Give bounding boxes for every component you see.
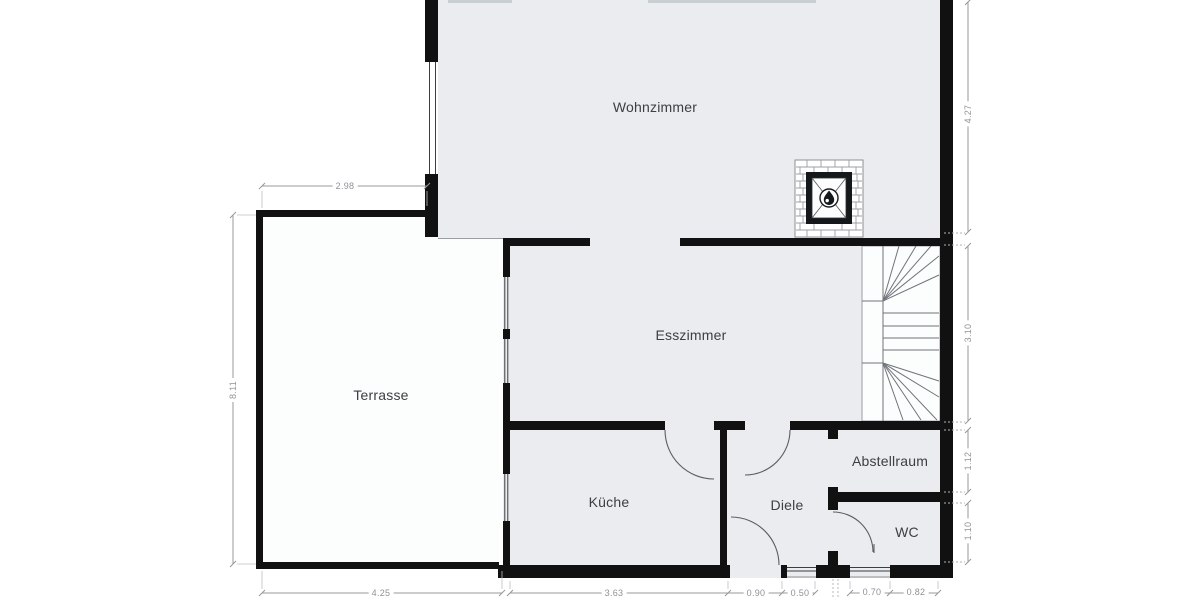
wall-east	[940, 0, 953, 578]
room-label-abstellraum: Abstellraum	[852, 453, 928, 469]
wall-stub-middle	[828, 487, 838, 510]
room-label-wohnzimmer: Wohnzimmer	[613, 99, 697, 115]
room-label-wc: WC	[895, 524, 919, 540]
floor-plan: Wohnzimmer Esszimmer Terrasse Küche Diel…	[0, 0, 1200, 600]
wall-stub-wc	[828, 551, 838, 565]
top-wall-strip	[448, 0, 512, 3]
room-label-esszimmer: Esszimmer	[655, 327, 726, 343]
terrace-wall-top	[256, 210, 431, 217]
dim-bottom-wc-window: 0.70	[860, 587, 885, 597]
wall-south-middle	[816, 565, 850, 578]
wall-south-pier	[781, 565, 787, 578]
fireplace	[795, 160, 863, 237]
dim-terrasse-depth: 8.11	[228, 378, 238, 402]
wall-abstellraum-wc	[838, 492, 940, 502]
dim-terrasse-width: 2.98	[333, 181, 358, 191]
wall-wohnzimmer-esszimmer-right	[680, 238, 940, 246]
wall-south-east	[890, 565, 953, 578]
dim-bottom-terrasse: 4.25	[369, 588, 394, 598]
stairs-area	[862, 246, 940, 421]
dim-right-stairs: 3.10	[963, 321, 973, 346]
stairs	[862, 246, 940, 421]
room-label-diele: Diele	[771, 497, 804, 513]
flame-icon-highlight	[826, 199, 829, 202]
wall-west-esszimmer	[503, 238, 510, 277]
terrace-wall-bottom	[256, 562, 499, 569]
dim-right-abstellraum: 1.12	[963, 449, 973, 474]
top-wall-strip	[648, 0, 816, 3]
terrace-wall-left	[256, 210, 263, 569]
wall-south-kueche	[498, 565, 730, 578]
wall-stub-abstellraum	[828, 430, 838, 439]
dim-bottom-wall: 0.82	[904, 587, 929, 597]
window-cap	[503, 470, 510, 474]
dim-right-wc: 1.10	[963, 519, 973, 544]
wall-esszimmer-abstellraum	[790, 421, 940, 430]
wall-wohnzimmer-esszimmer-left	[503, 238, 590, 246]
window-cap	[503, 329, 510, 339]
wohnzimmer-floor	[438, 0, 940, 239]
dim-bottom-entry-door: 0.90	[744, 588, 769, 598]
room-label-terrasse: Terrasse	[353, 387, 408, 403]
dim-right-wohnzimmer: 4.27	[963, 102, 973, 127]
room-label-kueche: Küche	[589, 494, 630, 510]
wall-door-pier	[714, 421, 745, 430]
dim-bottom-window: 0.50	[788, 588, 813, 598]
floor-plan-drawing	[0, 0, 1200, 600]
wall-west-upper	[425, 0, 438, 62]
wall-esszimmer-kueche	[503, 421, 665, 430]
wall-kueche-diele	[720, 430, 727, 565]
dim-bottom-kueche: 3.63	[602, 588, 627, 598]
